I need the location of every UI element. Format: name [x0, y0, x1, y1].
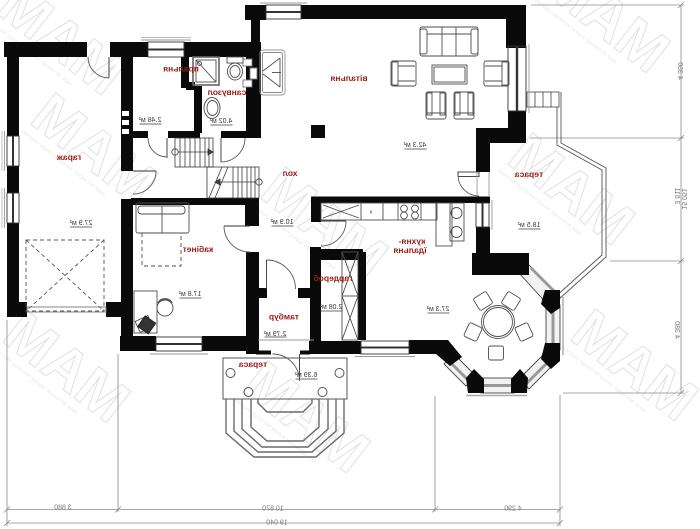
svg-text:хол: хол	[283, 168, 298, 178]
svg-text:4 290: 4 290	[504, 506, 522, 513]
svg-text:їдальня: їдальня	[393, 245, 427, 255]
svg-text:4 380: 4 380	[673, 321, 680, 339]
svg-text:x: x	[370, 210, 373, 216]
svg-text:гардероб: гардероб	[313, 273, 352, 283]
svg-text:6.39 м²: 6.39 м²	[294, 372, 317, 379]
svg-text:2.48 м²: 2.48 м²	[138, 117, 161, 124]
svg-text:тамбур: тамбур	[269, 312, 299, 322]
svg-text:19 040: 19 040	[266, 520, 288, 527]
svg-text:тераса: тераса	[239, 359, 268, 369]
svg-text:кабінет: кабінет	[183, 244, 214, 254]
svg-text:вітальня: вітальня	[330, 73, 367, 83]
svg-text:гараж: гараж	[56, 152, 81, 162]
svg-text:4 350: 4 350	[676, 62, 683, 80]
svg-text:3 880: 3 880	[54, 505, 72, 512]
svg-text:17.8 м²: 17.8 м²	[178, 291, 201, 298]
svg-text:санвузол: санвузол	[208, 87, 247, 97]
svg-text:18.5 м²: 18.5 м²	[517, 222, 540, 229]
svg-text:4.02 м²: 4.02 м²	[209, 118, 232, 125]
svg-text:тераса: тераса	[515, 169, 544, 179]
svg-text:15 051: 15 051	[680, 188, 687, 210]
svg-text:27.9 м²: 27.9 м²	[69, 220, 92, 227]
svg-text:пральня: пральня	[163, 64, 199, 74]
svg-text:10 870: 10 870	[262, 506, 284, 513]
svg-text:3 611: 3 611	[673, 187, 680, 204]
svg-text:2.08 м²: 2.08 м²	[319, 304, 342, 311]
svg-text:10.9 м²: 10.9 м²	[270, 219, 293, 226]
svg-text:27.3 м²: 27.3 м²	[426, 306, 449, 313]
svg-text:42.3 м²: 42.3 м²	[403, 142, 426, 149]
